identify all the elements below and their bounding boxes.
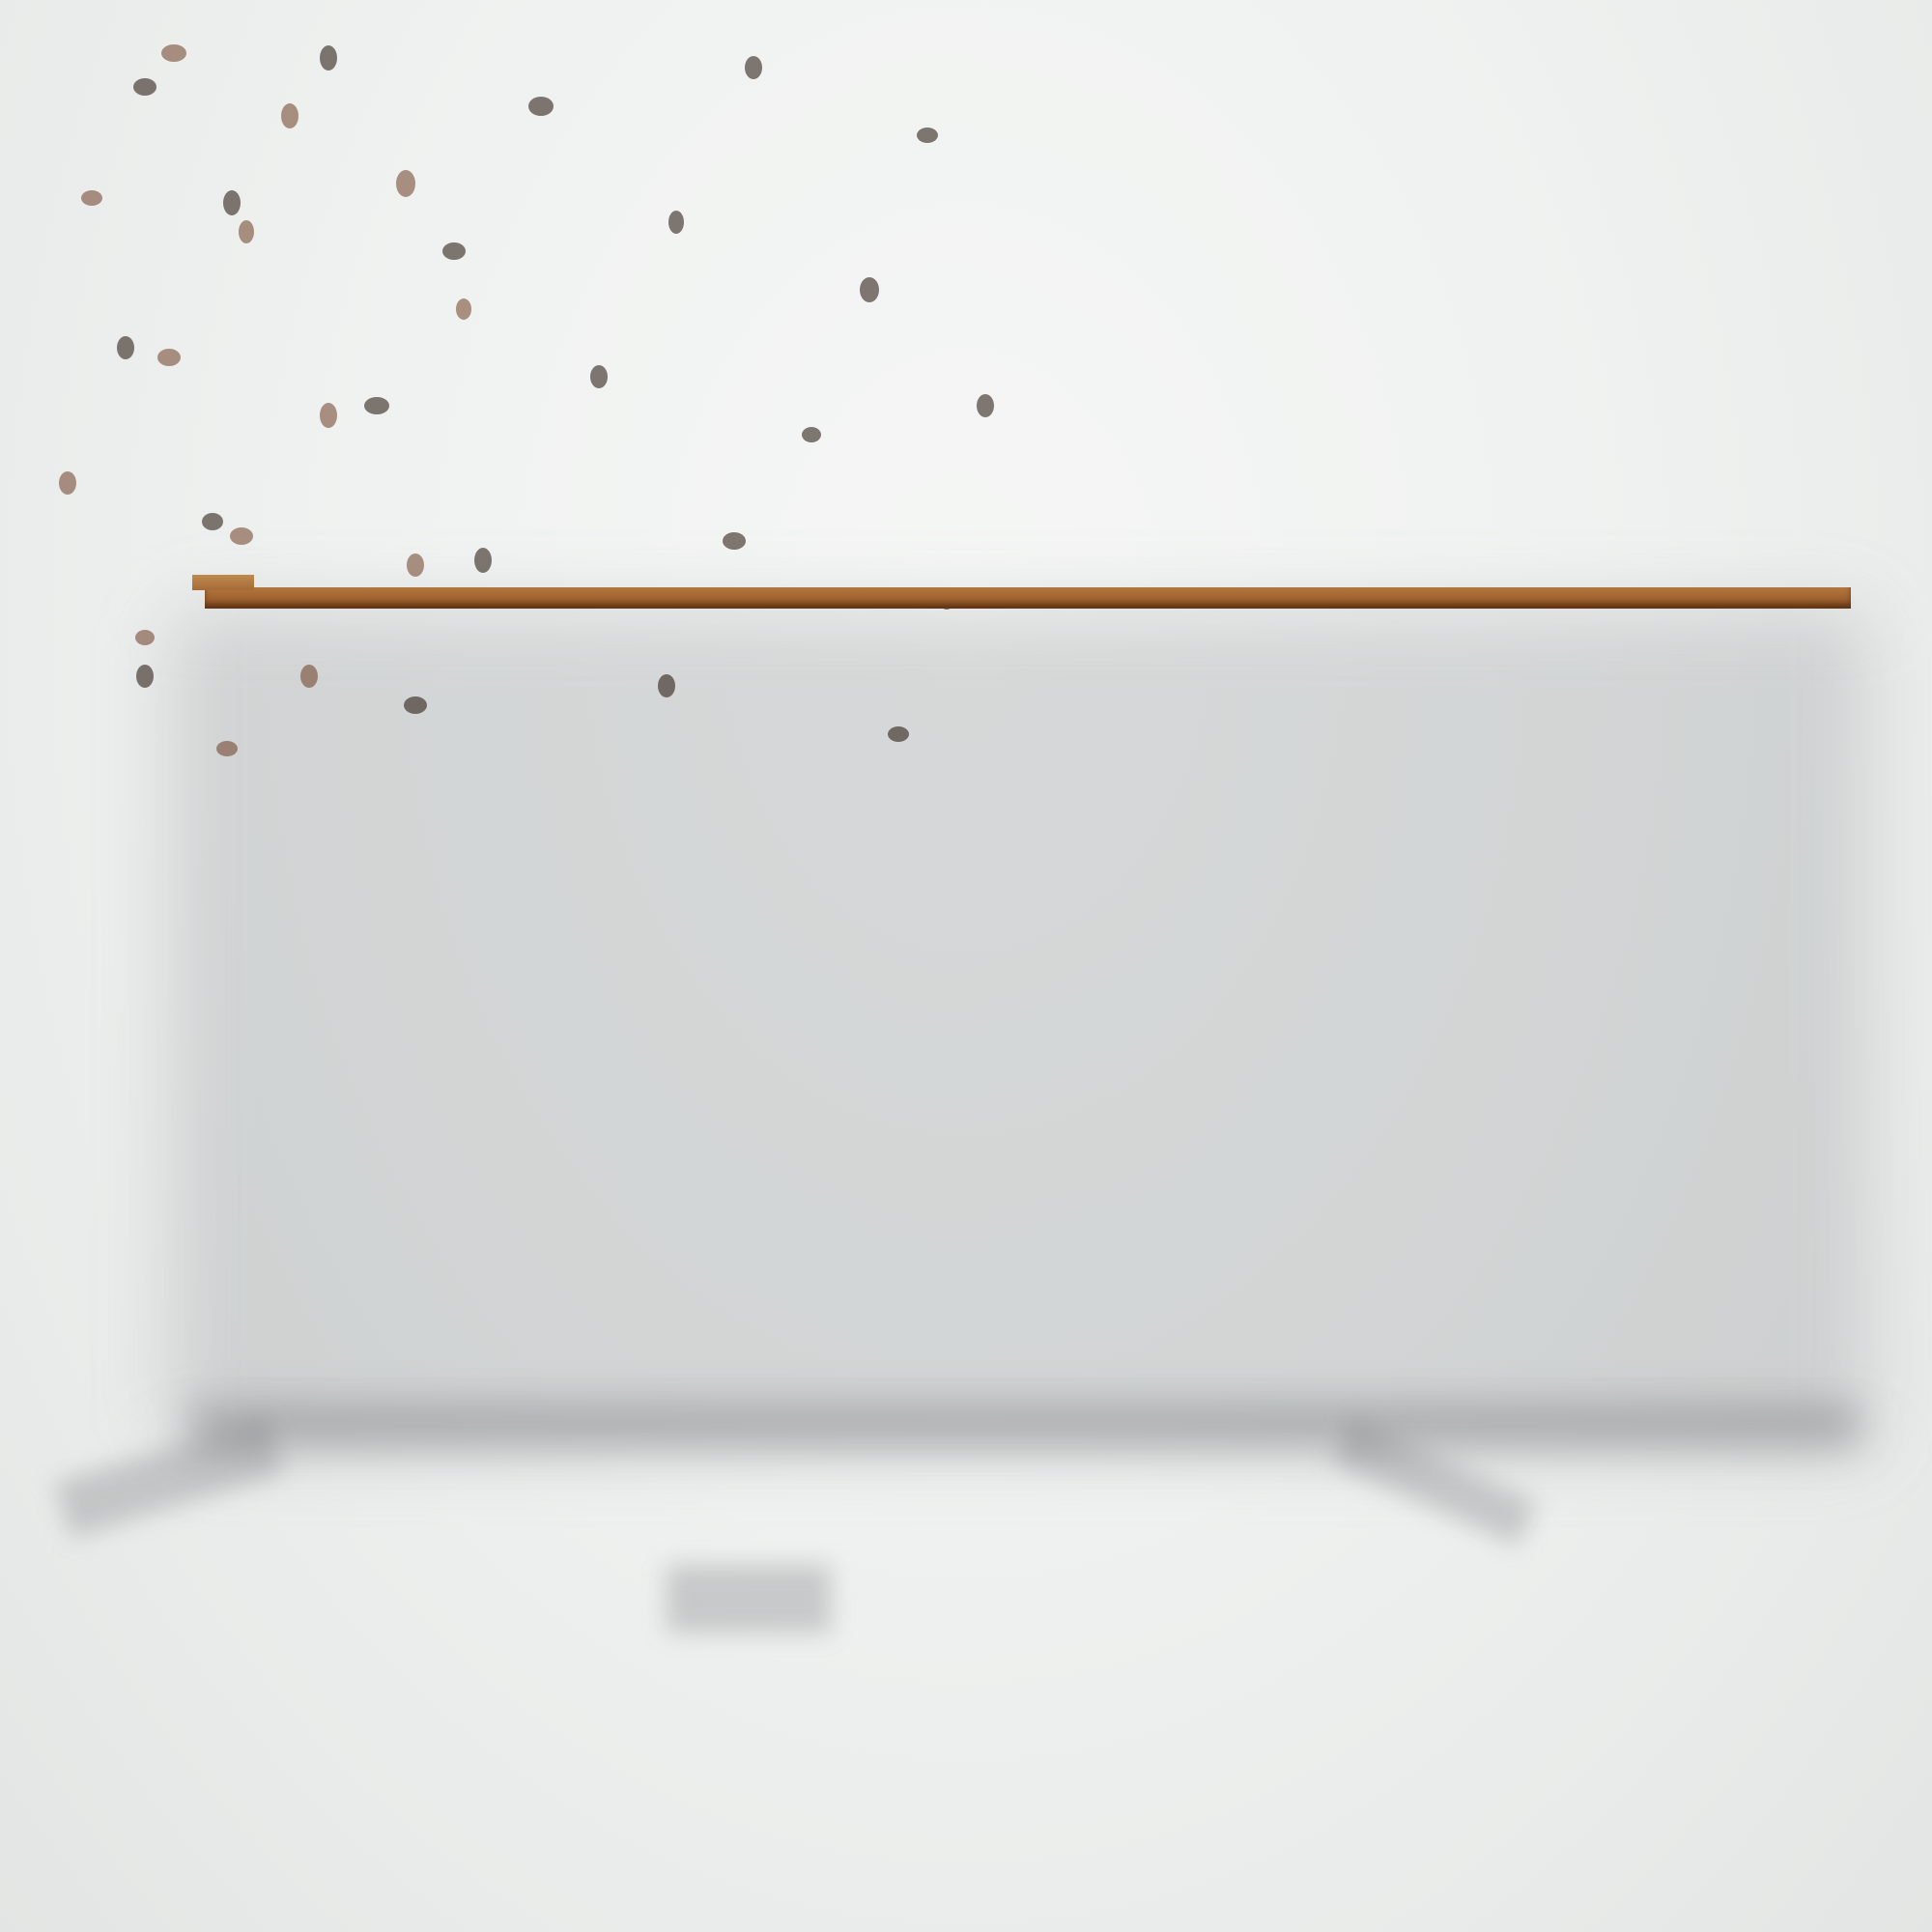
divider-wall-top-tab bbox=[728, 576, 765, 589]
right-room-depth-arrow bbox=[0, 1708, 1932, 1932]
back-wall-left-cap bbox=[192, 575, 254, 590]
diagram-stage: 350cm (11’6”) 175cm (5’9”) 109cm (3’ 7”)… bbox=[0, 0, 1932, 1932]
back-wall bbox=[205, 587, 1851, 609]
middle-doors-shadow bbox=[667, 1565, 831, 1633]
building-contact-shadow bbox=[188, 1403, 1860, 1447]
